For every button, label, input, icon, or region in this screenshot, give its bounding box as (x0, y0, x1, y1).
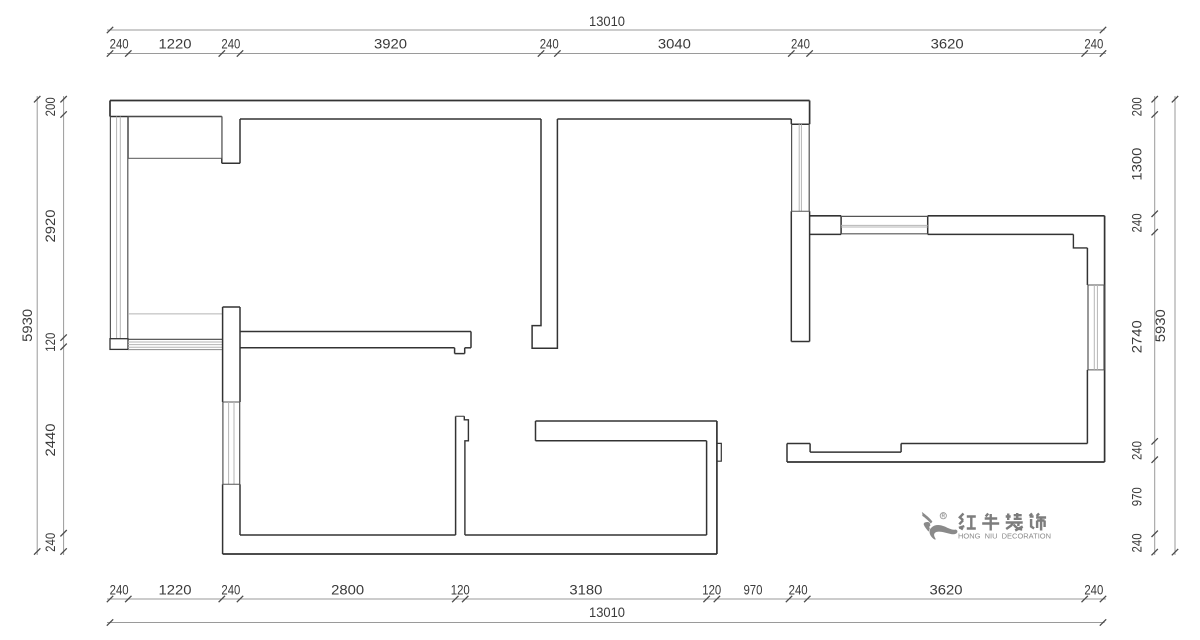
svg-text:970: 970 (1129, 487, 1145, 506)
svg-text:2920: 2920 (42, 209, 58, 242)
svg-text:5930: 5930 (19, 309, 35, 342)
svg-text:240: 240 (110, 36, 129, 52)
svg-text:240: 240 (791, 36, 810, 52)
svg-text:HONG NIU DECORATION: HONG NIU DECORATION (958, 532, 1051, 541)
svg-text:240: 240 (221, 36, 240, 52)
svg-text:240: 240 (540, 36, 559, 52)
svg-text:240: 240 (1084, 582, 1103, 598)
svg-text:1300: 1300 (1129, 147, 1145, 180)
svg-text:240: 240 (1129, 441, 1145, 460)
svg-text:5930: 5930 (1152, 309, 1168, 342)
svg-text:200: 200 (1129, 97, 1145, 116)
svg-text:240: 240 (1129, 533, 1145, 552)
svg-text:240: 240 (1129, 213, 1145, 232)
svg-text:3620: 3620 (930, 582, 963, 598)
svg-text:3180: 3180 (569, 582, 602, 598)
svg-text:2740: 2740 (1129, 320, 1145, 353)
svg-text:120: 120 (702, 582, 721, 598)
svg-text:1220: 1220 (159, 582, 192, 598)
svg-text:200: 200 (42, 97, 58, 116)
svg-text:120: 120 (42, 333, 58, 352)
svg-text:3040: 3040 (658, 36, 691, 52)
svg-text:13010: 13010 (589, 604, 625, 620)
svg-text:970: 970 (743, 582, 762, 598)
svg-text:3920: 3920 (374, 36, 407, 52)
svg-text:3620: 3620 (931, 36, 964, 52)
svg-text:120: 120 (451, 582, 470, 598)
svg-text:13010: 13010 (589, 13, 625, 29)
svg-text:240: 240 (110, 582, 129, 598)
svg-text:240: 240 (1084, 36, 1103, 52)
svg-text:240: 240 (221, 582, 240, 598)
svg-text:240: 240 (42, 533, 58, 552)
svg-text:240: 240 (789, 582, 808, 598)
svg-text:2800: 2800 (331, 582, 364, 598)
svg-text:2440: 2440 (42, 423, 58, 456)
svg-text:1220: 1220 (159, 36, 192, 52)
